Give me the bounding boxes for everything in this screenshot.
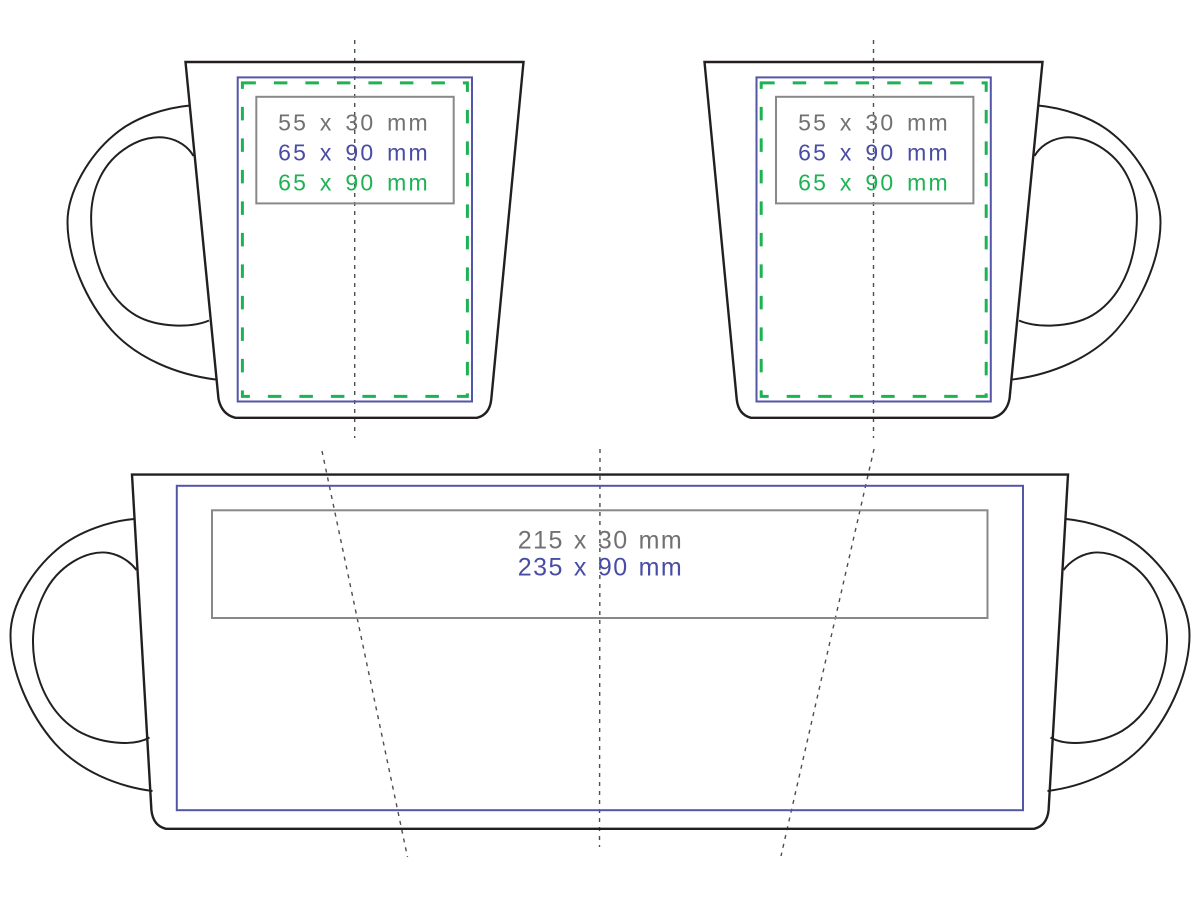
svg-text:55 x 30 mm: 55 x 30 mm bbox=[798, 110, 950, 136]
svg-text:65 x 90 mm: 65 x 90 mm bbox=[278, 170, 430, 196]
svg-text:65 x 90 mm: 65 x 90 mm bbox=[798, 170, 950, 196]
svg-text:65 x 90 mm: 65 x 90 mm bbox=[278, 140, 430, 166]
svg-text:215 x 30 mm: 215 x 30 mm bbox=[518, 526, 684, 554]
svg-text:235 x 90 mm: 235 x 90 mm bbox=[518, 553, 684, 581]
svg-text:55 x 30 mm: 55 x 30 mm bbox=[278, 110, 430, 136]
svg-text:65 x 90 mm: 65 x 90 mm bbox=[798, 140, 950, 166]
